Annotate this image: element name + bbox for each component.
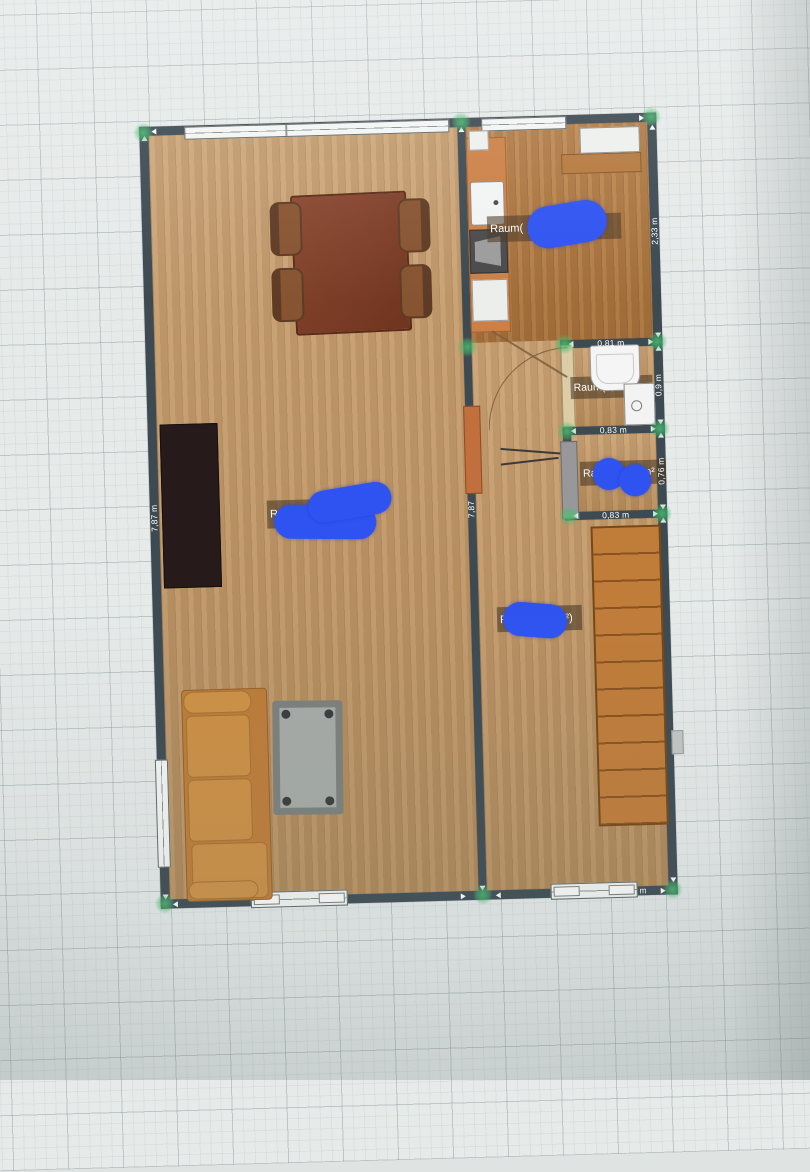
dimension-text: 0,83 m [600,425,627,435]
kitchen-cabinet-corner[interactable] [468,130,489,151]
dimension-text: 0,9 m [654,374,664,397]
faucet-dot [493,200,498,205]
grid-canvas[interactable]: Raum( m²) R ) Rau m²) Raum( m² Raum(0,7 [0,0,810,1172]
sofa-armrest [183,690,252,714]
dining-table[interactable] [290,191,412,336]
dimension-text: 7,87 m [150,504,160,531]
wall-junction-handle[interactable] [641,106,662,127]
dining-chair[interactable] [271,267,304,322]
wall-junction-handle[interactable] [662,879,683,900]
dining-chair[interactable] [269,202,302,257]
dimension-text: m [639,886,647,895]
dining-chair[interactable] [397,198,430,253]
floor-plan[interactable]: Raum( m²) R ) Rau m²) Raum( m² Raum(0,7 [139,113,678,909]
coffee-table[interactable] [272,700,343,815]
wall-junction-handle[interactable] [650,418,671,439]
dining-chair[interactable] [399,264,432,319]
dimension-text: 2,33 m [650,217,660,244]
arrow-right-icon [461,893,466,899]
table-leg [281,710,290,719]
table-leg [282,797,291,806]
wall-junction-handle[interactable] [472,884,493,905]
blue-scribble [502,601,568,640]
table-leg [325,796,334,805]
dimension-text: 0,76 m [657,457,667,484]
wall-junction-handle[interactable] [155,893,176,914]
bathroom-toilet[interactable] [624,383,656,426]
sofa-cushion [186,714,252,778]
toilet-circle [631,400,642,411]
room-label-text: Raum( [490,222,523,235]
dimension-text: 7,87 [467,500,476,518]
sink-basin-line [596,353,635,384]
dimension-bathroom-right: 0,9 m [653,345,664,424]
wall-junction-handle[interactable] [652,503,673,524]
arrow-left-icon [496,892,501,898]
kitchen-cabinet-top[interactable] [579,126,640,154]
sideboard[interactable] [159,423,222,589]
sofa-cushion [187,778,253,842]
kitchen-cabinet-lower[interactable] [472,279,509,322]
dimension-storage-right: 0,76 m [656,432,667,509]
dimension-text: 0,83 m [602,510,629,520]
dimension-text: 0,81 m [597,338,624,348]
kitchen-counter-top[interactable] [561,152,642,174]
wall-junction-handle[interactable] [647,331,668,352]
stairs[interactable] [591,525,669,827]
table-leg [324,709,333,718]
